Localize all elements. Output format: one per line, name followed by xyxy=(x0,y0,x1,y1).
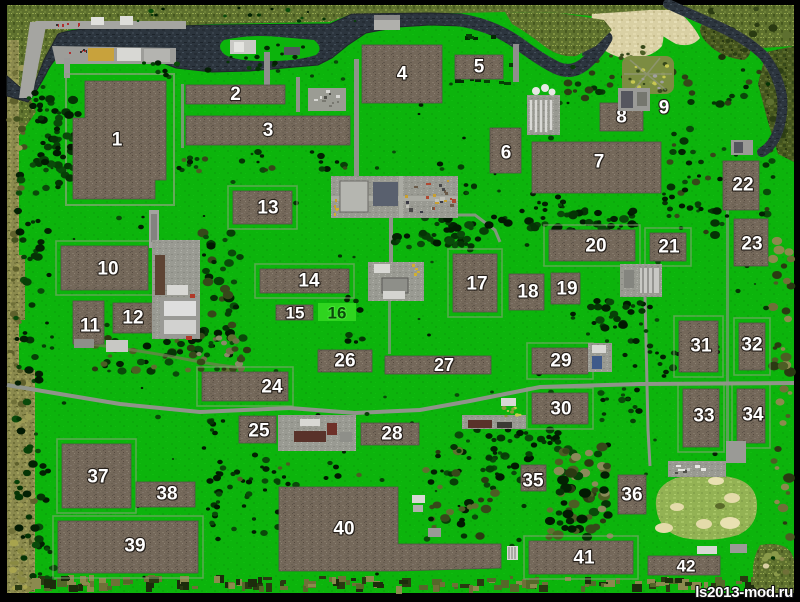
svg-text:2: 2 xyxy=(230,84,241,105)
svg-text:5: 5 xyxy=(474,57,485,78)
svg-text:36: 36 xyxy=(621,485,642,506)
svg-text:33: 33 xyxy=(693,406,714,427)
svg-text:25: 25 xyxy=(248,421,270,442)
svg-text:7: 7 xyxy=(594,152,605,173)
svg-text:26: 26 xyxy=(334,351,355,372)
svg-text:18: 18 xyxy=(517,282,538,303)
svg-text:13: 13 xyxy=(257,198,278,219)
svg-text:1: 1 xyxy=(112,130,123,151)
svg-text:16: 16 xyxy=(328,304,347,323)
svg-text:17: 17 xyxy=(466,274,487,295)
svg-text:41: 41 xyxy=(573,548,595,569)
svg-text:32: 32 xyxy=(741,335,762,356)
svg-text:24: 24 xyxy=(261,377,283,398)
svg-text:11: 11 xyxy=(80,316,101,337)
svg-text:27: 27 xyxy=(434,355,454,375)
svg-text:9: 9 xyxy=(659,98,670,119)
svg-text:40: 40 xyxy=(333,519,354,540)
svg-text:29: 29 xyxy=(550,351,571,372)
svg-text:37: 37 xyxy=(87,467,108,488)
svg-text:3: 3 xyxy=(263,120,274,141)
svg-text:30: 30 xyxy=(550,399,571,420)
svg-text:42: 42 xyxy=(677,557,696,576)
svg-text:39: 39 xyxy=(124,536,145,557)
svg-text:14: 14 xyxy=(298,271,320,292)
svg-text:ls2013-mod.ru: ls2013-mod.ru xyxy=(695,584,793,601)
svg-text:19: 19 xyxy=(556,279,577,300)
svg-text:38: 38 xyxy=(156,484,177,505)
svg-text:20: 20 xyxy=(585,236,606,257)
svg-text:35: 35 xyxy=(522,471,544,492)
svg-text:4: 4 xyxy=(397,64,408,85)
svg-text:28: 28 xyxy=(381,424,402,445)
svg-text:15: 15 xyxy=(286,304,305,323)
svg-text:31: 31 xyxy=(690,336,712,357)
svg-text:23: 23 xyxy=(741,234,762,255)
svg-text:21: 21 xyxy=(658,237,680,258)
svg-text:12: 12 xyxy=(122,308,143,329)
svg-text:6: 6 xyxy=(501,143,512,164)
svg-text:34: 34 xyxy=(742,405,764,426)
svg-text:22: 22 xyxy=(732,175,753,196)
svg-text:10: 10 xyxy=(97,259,118,280)
